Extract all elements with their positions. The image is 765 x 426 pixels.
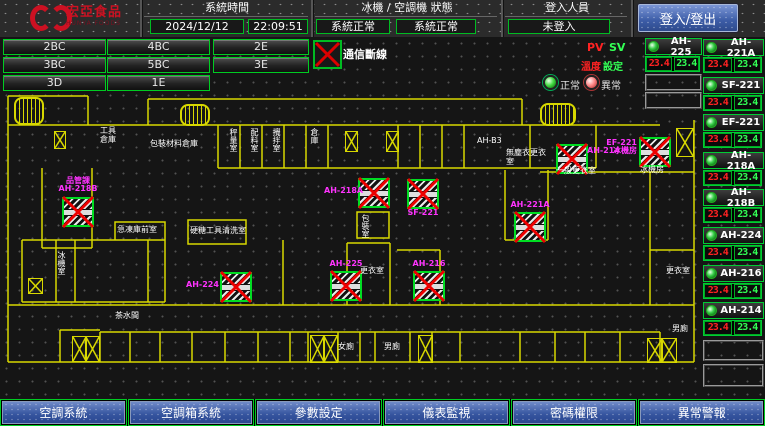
room-label: 更衣室 — [360, 266, 384, 275]
status-led-icon — [706, 42, 717, 53]
status-led-icon — [706, 230, 717, 241]
status-led-icon — [706, 192, 717, 203]
room-label: 工具倉庫 — [100, 126, 120, 144]
room-label: 男廁 — [384, 342, 400, 351]
ahu-label: AH-216 — [407, 260, 451, 268]
room-label: 包裝室 — [361, 214, 370, 238]
ahu-status-value: 系統正常 — [396, 19, 476, 34]
toolbar-button-空調箱系統[interactable]: 空調箱系統 — [130, 401, 253, 424]
abnormal-label: 異常 — [601, 77, 621, 92]
logo-title: 宏亞食品 — [66, 6, 136, 20]
room-label: 女廁 — [338, 342, 354, 351]
room-label: 冰機室 — [57, 251, 66, 275]
floor-button-3BC[interactable]: 3BC — [3, 57, 106, 73]
room-label: AH-B3 — [477, 136, 502, 145]
sv-value-SF-221: 23.4 — [734, 96, 762, 110]
toolbar-cell: 空調系統 — [0, 399, 127, 426]
unit-status-AH-216[interactable]: AH-216 — [703, 265, 764, 282]
room-label: 配料室 — [250, 128, 259, 152]
normal-led-icon — [543, 75, 558, 90]
normal-label: 正常 — [560, 77, 580, 92]
ahu-unit-SF-221[interactable] — [407, 179, 439, 209]
pv-value-AH-221A: 23.4 — [704, 58, 732, 72]
sv-value-AH-221A: 23.4 — [734, 58, 762, 72]
shaft-icon — [28, 278, 43, 294]
date-display: 2024/12/12 — [150, 19, 244, 34]
sv-header-label: SV — [609, 41, 625, 54]
header-underline — [315, 16, 497, 17]
shaft-icon — [661, 338, 677, 363]
time-display: 22:09:51 — [248, 19, 308, 34]
floor-button-4BC[interactable]: 4BC — [107, 39, 210, 55]
empty-slot — [703, 364, 764, 387]
unit-status-AH-221A[interactable]: AH-221A — [703, 39, 764, 56]
unit-values-SF-221: 23.423.4 — [703, 95, 762, 111]
unit-name-label: AH-218A — [719, 150, 763, 172]
ahu-label: EF-221 冰機房 — [605, 139, 637, 155]
floor-button-1E[interactable]: 1E — [107, 75, 210, 91]
ahu-label: AH-221A — [508, 201, 552, 209]
sv-value-AH-218A: 23.4 — [734, 171, 762, 185]
pv-value-AH-225: 23.4 — [646, 57, 672, 71]
status-led-icon — [706, 155, 717, 166]
unit-name-label: AH-216 — [719, 268, 763, 279]
ahu-unit-冰機房[interactable] — [639, 137, 671, 167]
shaft-icon — [386, 131, 399, 152]
shaft-icon — [323, 335, 338, 363]
status-led-icon — [706, 117, 717, 128]
unit-values-AH-221A: 23.423.4 — [703, 57, 762, 73]
pv-value-SF-221: 23.4 — [704, 96, 732, 110]
toolbar-cell: 密碼權限 — [511, 399, 638, 426]
floor-button-5BC[interactable]: 5BC — [107, 57, 210, 73]
shaft-icon — [54, 131, 66, 149]
unit-status-AH-225[interactable]: AH-225 — [645, 38, 702, 55]
ahu-label: AH-224 — [186, 281, 218, 289]
unit-name-label: EF-221 — [719, 117, 763, 128]
sv-value-EF-221: 23.4 — [734, 133, 762, 147]
stair-icon — [180, 104, 210, 126]
temp-header-label: 溫度 — [581, 58, 601, 73]
login-status-value: 未登入 — [508, 19, 610, 34]
unit-status-AH-214[interactable]: AH-214 — [703, 302, 764, 319]
abnormal-led-icon — [584, 75, 599, 90]
room-label: 倉庫 — [310, 128, 319, 144]
room-label: 無塵衣更衣室 — [506, 148, 552, 166]
comm-fail-x-icon — [217, 269, 255, 305]
header-divider — [501, 0, 504, 37]
toolbar-cell: 空調箱系統 — [128, 399, 255, 426]
floor-button-3E[interactable]: 3E — [213, 57, 309, 73]
pv-value-AH-214: 23.4 — [704, 321, 732, 335]
header-underline — [144, 16, 308, 17]
unit-name-label: AH-225 — [661, 36, 701, 58]
shaft-icon — [345, 131, 358, 152]
status-led-icon — [648, 41, 659, 52]
ahu-unit-AH-221A[interactable] — [514, 212, 546, 242]
status-led-icon — [706, 268, 717, 279]
shaft-icon — [418, 335, 433, 363]
sv-value-AH-214: 23.4 — [734, 321, 762, 335]
unit-name-label: AH-218B — [719, 187, 763, 209]
unit-name-label: SF-221 — [719, 80, 763, 91]
comm-fail-x-icon — [59, 194, 97, 230]
toolbar-button-異常警報[interactable]: 異常警報 — [640, 401, 763, 424]
header-divider — [631, 0, 634, 37]
login-user-label: 登入人員 — [505, 1, 629, 15]
unit-status-AH-218A[interactable]: AH-218A — [703, 152, 764, 169]
chiller-status-value: 系統正常 — [316, 19, 390, 34]
room-label: 一般更衣室 — [556, 166, 596, 175]
ahu-label: AH-218A — [324, 187, 356, 195]
stair-icon — [540, 103, 576, 126]
empty-slot — [645, 74, 702, 91]
shaft-icon — [85, 336, 100, 362]
pv-value-AH-218A: 23.4 — [704, 171, 732, 185]
status-led-icon — [706, 80, 717, 91]
unit-values-AH-216: 23.423.4 — [703, 283, 762, 299]
empty-slot — [645, 92, 702, 109]
pv-value-AH-218B: 23.4 — [704, 208, 732, 222]
toolbar-button-空調系統[interactable]: 空調系統 — [2, 401, 125, 424]
unit-status-AH-224[interactable]: AH-224 — [703, 227, 764, 244]
ahu-unit-AH-224[interactable] — [220, 272, 252, 302]
system-time-label: 系統時間 — [144, 1, 310, 15]
room-label: 包裝材料倉庫 — [150, 139, 198, 148]
unit-values-AH-218A: 23.423.4 — [703, 170, 762, 186]
ahu-unit-AH-218B[interactable] — [62, 197, 94, 227]
unit-name-label: AH-214 — [719, 305, 763, 316]
toolbar-button-儀表監視[interactable]: 儀表監視 — [385, 401, 508, 424]
room-label: 硬糖工具清洗室 — [190, 226, 246, 235]
room-label: 急凍庫前室 — [117, 225, 157, 234]
toolbar-cell: 參數設定 — [255, 399, 382, 426]
empty-slot — [703, 340, 764, 361]
ahu-unit-AH-216[interactable] — [413, 271, 445, 301]
sv-value-AH-224: 23.4 — [734, 246, 762, 260]
header-underline — [505, 16, 627, 17]
unit-values-AH-225: 23.423.4 — [645, 56, 700, 72]
unit-status-EF-221[interactable]: EF-221 — [703, 114, 764, 131]
sv-value-AH-218B: 23.4 — [734, 208, 762, 222]
toolbar-cell: 儀表監視 — [383, 399, 510, 426]
comm-fail-x-icon — [410, 268, 448, 304]
unit-status-AH-218B[interactable]: AH-218B — [703, 189, 764, 206]
unit-status-SF-221[interactable]: SF-221 — [703, 77, 764, 94]
floor-button-3D[interactable]: 3D — [3, 75, 106, 91]
toolbar-button-密碼權限[interactable]: 密碼權限 — [513, 401, 636, 424]
ahu-unit-AH-225[interactable] — [330, 271, 362, 301]
shaft-icon — [676, 128, 694, 157]
room-label: 更衣室 — [666, 266, 690, 275]
stair-icon — [14, 97, 44, 125]
ahu-label: SF-221 — [401, 209, 445, 217]
unit-name-label: AH-224 — [719, 230, 763, 241]
unit-values-EF-221: 23.423.4 — [703, 132, 762, 148]
header-divider — [311, 0, 314, 37]
unit-values-AH-224: 23.423.4 — [703, 245, 762, 261]
room-label: 男廁 — [672, 324, 688, 333]
floor-button-2BC[interactable]: 2BC — [3, 39, 106, 55]
unit-values-AH-218B: 23.423.4 — [703, 207, 762, 223]
set-header-label: 設定 — [603, 58, 623, 73]
floor-button-2E[interactable]: 2E — [213, 39, 309, 55]
company-logo: 宏亞食品 HUNYA FOODS — [66, 6, 136, 28]
toolbar-cell: 異常警報 — [638, 399, 765, 426]
pv-value-EF-221: 23.4 — [704, 133, 732, 147]
room-label: 秤量室 — [229, 128, 238, 152]
sv-value-AH-216: 23.4 — [734, 284, 762, 298]
header-bar: 宏亞食品 HUNYA FOODS 系統時間 2024/12/12 22:09:5… — [0, 0, 765, 38]
pv-value-AH-224: 23.4 — [704, 246, 732, 260]
toolbar-button-參數設定[interactable]: 參數設定 — [257, 401, 380, 424]
floor-plan: 2BC4BC2E3BC5BC3E3D1E 通信斷線 正常 異常 PV SV 溫度… — [0, 37, 765, 399]
header-divider — [140, 0, 143, 37]
chiller-ahu-status-label: 冰機 / 空調機 狀態 — [315, 1, 499, 15]
logo-subtitle: HUNYA FOODS — [66, 20, 136, 28]
room-label: 冰機房 — [640, 165, 664, 174]
sv-value-AH-225: 23.4 — [674, 57, 700, 71]
main-toolbar: 空調系統空調箱系統參數設定儀表監視密碼權限異常警報 — [0, 399, 765, 426]
status-led-icon — [706, 305, 717, 316]
comm-fail-x-icon — [404, 176, 442, 212]
pv-header-label: PV — [587, 41, 604, 54]
room-label: 攪拌室 — [272, 128, 281, 152]
comm-fail-label: 通信斷線 — [343, 46, 387, 62]
hmi-screen: 宏亞食品 HUNYA FOODS 系統時間 2024/12/12 22:09:5… — [0, 0, 765, 426]
unit-values-AH-214: 23.423.4 — [703, 320, 762, 336]
login-logout-button[interactable]: 登入/登出 — [638, 4, 738, 32]
pv-value-AH-216: 23.4 — [704, 284, 732, 298]
room-label: 茶水間 — [115, 311, 139, 320]
unit-name-label: AH-221A — [719, 37, 763, 59]
comm-fail-icon — [313, 40, 342, 69]
comm-fail-x-icon — [511, 209, 549, 245]
ahu-label: 品管課 AH-218B — [56, 177, 100, 193]
